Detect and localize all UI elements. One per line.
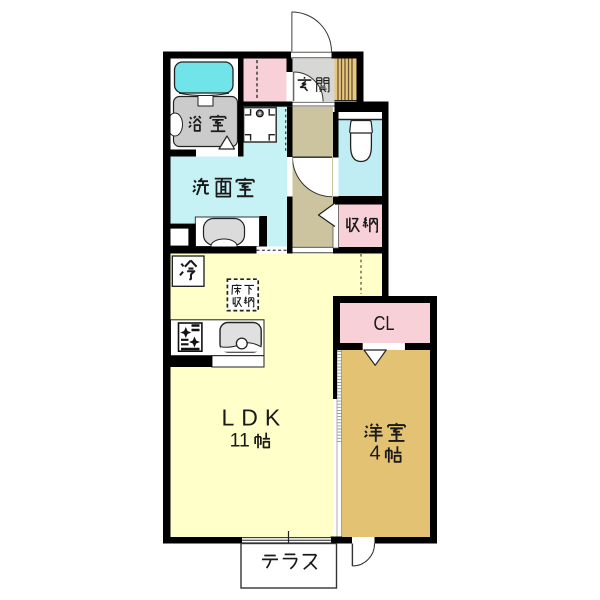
svg-text:LDK: LDK	[222, 405, 288, 431]
svg-text:CL: CL	[374, 313, 395, 335]
svg-text:4: 4	[370, 443, 381, 465]
svg-text:11: 11	[230, 430, 250, 452]
